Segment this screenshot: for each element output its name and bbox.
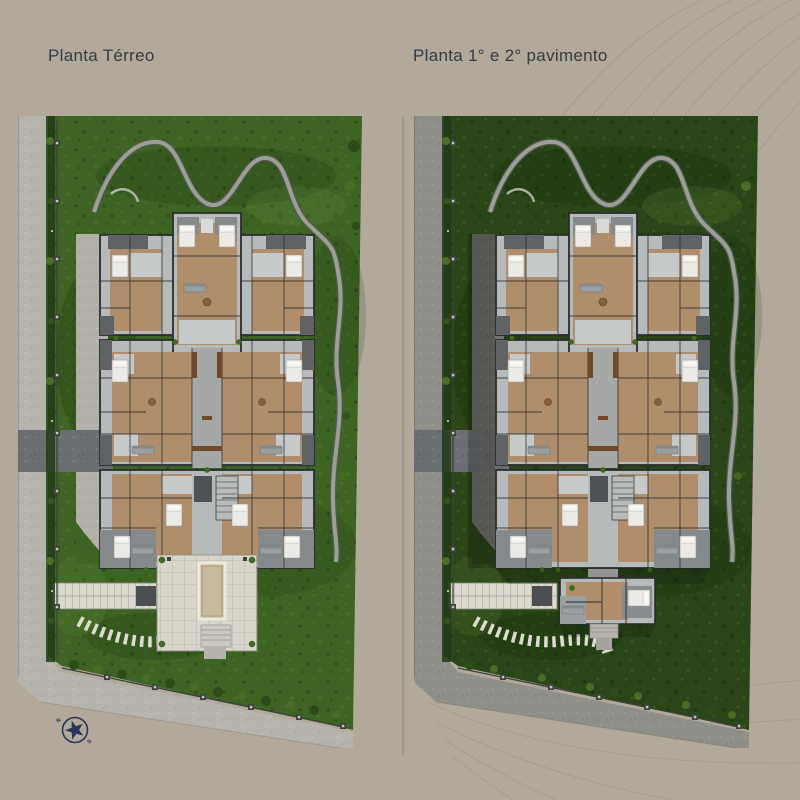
plan-title-terreo: Planta Térreo [48,46,155,66]
compass-rose: N S [55,717,93,745]
compass-north-label: N [55,717,62,724]
site-plan-terreo: N S [16,116,366,748]
plan-title-pavimentos: Planta 1° e 2° pavimento [413,46,608,66]
patio-pool-area [157,555,257,659]
compass-south-label: S [86,738,93,745]
site-plan-pavimentos [412,116,762,748]
plan-divider-shadow [402,116,405,756]
canvas: Planta Térreo Planta 1° e 2° pavimento [0,0,800,800]
